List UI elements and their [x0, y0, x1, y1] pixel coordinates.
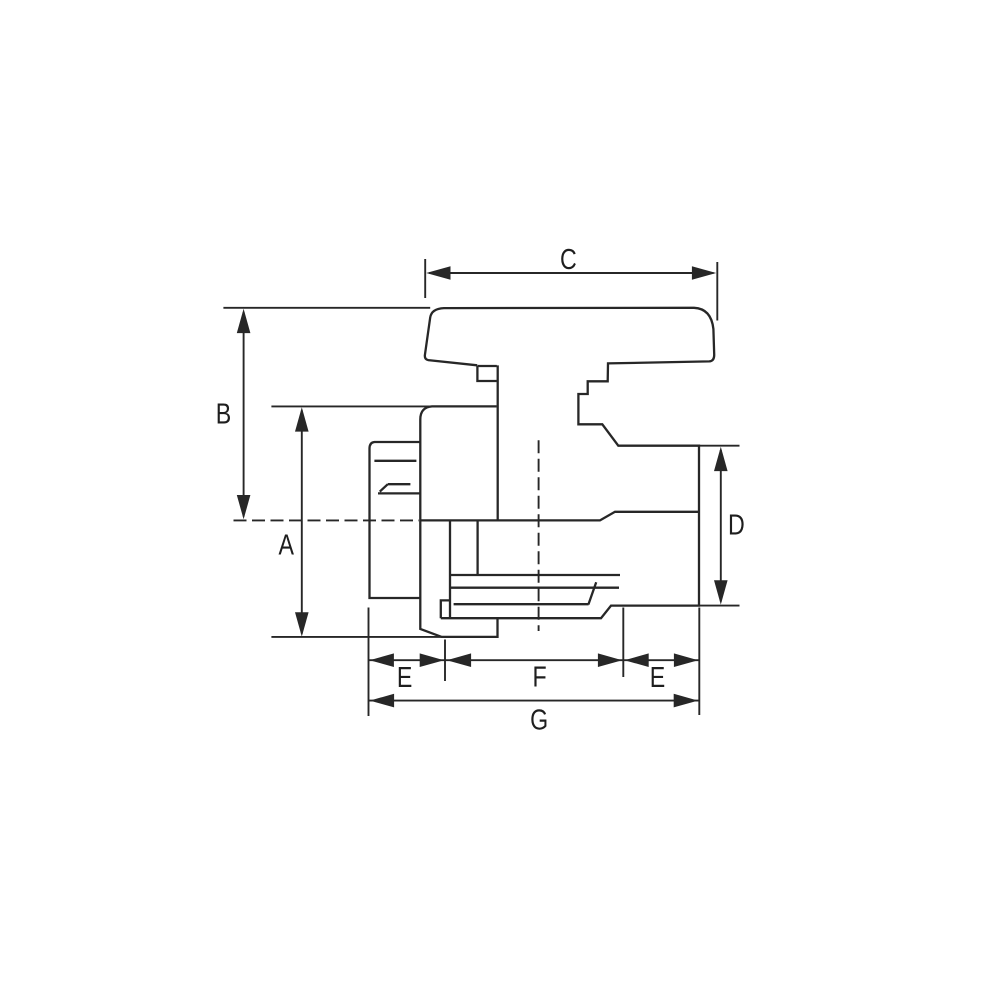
svg-text:C: C [560, 242, 577, 275]
svg-text:B: B [216, 397, 231, 430]
svg-text:G: G [530, 703, 548, 736]
svg-text:E: E [397, 660, 412, 693]
svg-text:F: F [533, 660, 547, 693]
svg-text:A: A [279, 528, 295, 561]
svg-text:E: E [650, 660, 665, 693]
svg-text:D: D [728, 508, 745, 541]
